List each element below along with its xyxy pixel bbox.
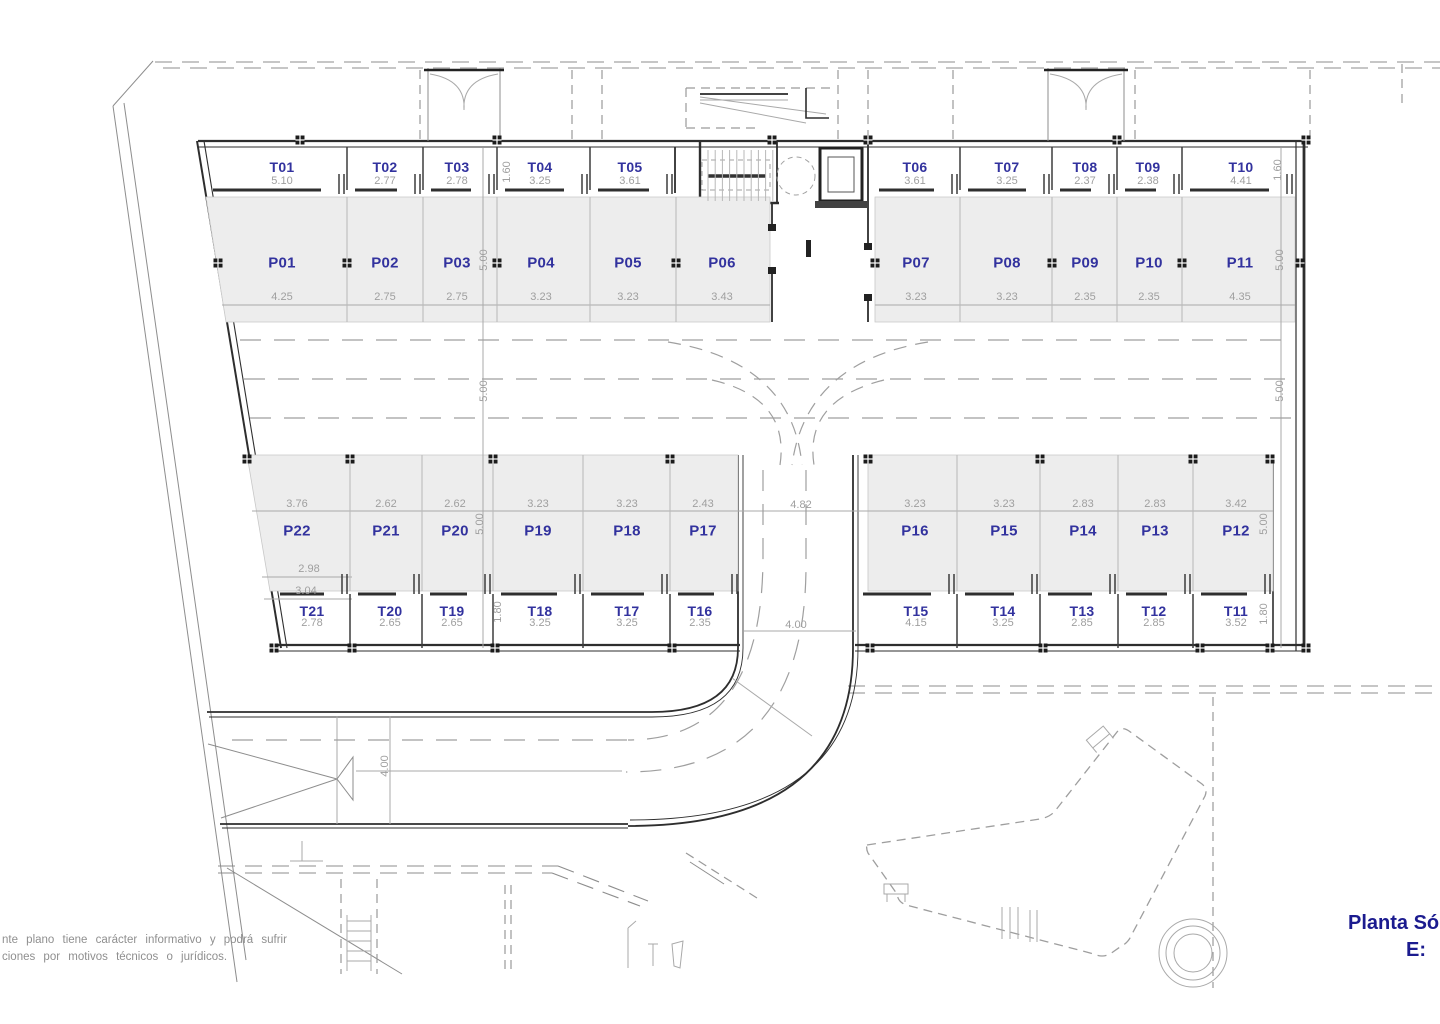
parking-space-label: P06 bbox=[708, 255, 736, 272]
dimension-label: 1.60 bbox=[501, 161, 513, 182]
dimension-label: 1.80 bbox=[492, 601, 504, 622]
parking-width-dim: 4.25 bbox=[271, 291, 292, 303]
parking-width-dim: 2.75 bbox=[374, 291, 395, 303]
storage-width-dim: 3.25 bbox=[996, 175, 1017, 187]
parking-width-dim: 2.83 bbox=[1072, 498, 1093, 510]
storage-room-label: T08 bbox=[1072, 159, 1097, 175]
storage-width-dim: 2.37 bbox=[1074, 175, 1095, 187]
dimension-label: 5.00 bbox=[474, 513, 486, 534]
storage-width-dim: 2.77 bbox=[374, 175, 395, 187]
parking-width-dim: 2.83 bbox=[1144, 498, 1165, 510]
parking-space-label: P08 bbox=[993, 255, 1021, 272]
parking-space-label: P22 bbox=[283, 523, 311, 540]
storage-room-label: T07 bbox=[994, 159, 1019, 175]
parking-space-label: P01 bbox=[268, 255, 296, 272]
parking-space-label: P15 bbox=[990, 523, 1018, 540]
storage-width-dim: 2.78 bbox=[301, 617, 322, 629]
parking-space-label: P13 bbox=[1141, 523, 1169, 540]
parking-space-label: P20 bbox=[441, 523, 469, 540]
parking-space-label: P11 bbox=[1227, 255, 1254, 272]
dimension-label: 2.98 bbox=[298, 563, 319, 575]
parking-space-label: P05 bbox=[614, 255, 642, 272]
parking-width-dim: 3.76 bbox=[286, 498, 307, 510]
storage-room-label: T04 bbox=[527, 159, 552, 175]
parking-space-label: P12 bbox=[1222, 523, 1250, 540]
storage-width-dim: 3.25 bbox=[992, 617, 1013, 629]
disclaimer-line-1: nte plano tiene carácter informativo y p… bbox=[2, 932, 287, 949]
parking-width-dim: 3.23 bbox=[904, 498, 925, 510]
dimension-label: 4.00 bbox=[785, 619, 806, 631]
storage-width-dim: 2.85 bbox=[1143, 617, 1164, 629]
parking-width-dim: 3.23 bbox=[527, 498, 548, 510]
parking-space-label: P19 bbox=[524, 523, 552, 540]
storage-width-dim: 3.25 bbox=[616, 617, 637, 629]
parking-width-dim: 3.23 bbox=[996, 291, 1017, 303]
storage-width-dim: 3.25 bbox=[529, 175, 550, 187]
storage-width-dim: 3.25 bbox=[529, 617, 550, 629]
parking-width-dim: 3.23 bbox=[905, 291, 926, 303]
storage-room-label: T03 bbox=[444, 159, 469, 175]
parking-width-dim: 3.42 bbox=[1225, 498, 1246, 510]
parking-width-dim: 2.62 bbox=[375, 498, 396, 510]
storage-width-dim: 2.65 bbox=[441, 617, 462, 629]
plan-scale: E: bbox=[1348, 937, 1439, 964]
dimension-label: 4.00 bbox=[379, 755, 391, 776]
storage-width-dim: 4.15 bbox=[905, 617, 926, 629]
storage-room-label: T10 bbox=[1228, 159, 1253, 175]
parking-width-dim: 3.23 bbox=[616, 498, 637, 510]
dimension-label: 3.04 bbox=[295, 585, 316, 597]
parking-width-dim: 3.23 bbox=[617, 291, 638, 303]
dimension-label: 4.82 bbox=[790, 499, 811, 511]
parking-space-label: P18 bbox=[613, 523, 641, 540]
parking-space-label: P09 bbox=[1071, 255, 1099, 272]
dimension-label: 5.00 bbox=[1274, 380, 1286, 401]
parking-space-label: P04 bbox=[527, 255, 555, 272]
dimension-label: 5.00 bbox=[1274, 249, 1286, 270]
parking-space-label: P16 bbox=[901, 523, 929, 540]
title-block: Planta Só E: bbox=[1348, 910, 1439, 964]
parking-width-dim: 3.43 bbox=[711, 291, 732, 303]
parking-space-label: P21 bbox=[372, 523, 400, 540]
dimension-label: 5.00 bbox=[1258, 513, 1270, 534]
storage-width-dim: 4.41 bbox=[1230, 175, 1251, 187]
disclaimer-line-2: ciones por motivos técnicos o jurídicos. bbox=[2, 949, 287, 966]
parking-width-dim: 2.75 bbox=[446, 291, 467, 303]
storage-width-dim: 2.78 bbox=[446, 175, 467, 187]
dimension-label: 5.00 bbox=[478, 380, 490, 401]
parking-space-label: P14 bbox=[1069, 523, 1097, 540]
parking-space-label: P17 bbox=[689, 523, 717, 540]
storage-width-dim: 2.35 bbox=[689, 617, 710, 629]
parking-width-dim: 4.35 bbox=[1229, 291, 1250, 303]
parking-space-label: P03 bbox=[443, 255, 471, 272]
storage-room-label: T06 bbox=[902, 159, 927, 175]
parking-width-dim: 3.23 bbox=[530, 291, 551, 303]
storage-width-dim: 3.61 bbox=[619, 175, 640, 187]
storage-room-label: T05 bbox=[617, 159, 642, 175]
parking-width-dim: 2.35 bbox=[1138, 291, 1159, 303]
storage-width-dim: 2.38 bbox=[1137, 175, 1158, 187]
storage-width-dim: 2.65 bbox=[379, 617, 400, 629]
dimension-label: 1.60 bbox=[1272, 159, 1284, 180]
floor-plan: P014.25P022.75P032.75P043.23P053.23P063.… bbox=[0, 0, 1440, 1024]
parking-space-label: P02 bbox=[371, 255, 399, 272]
parking-width-dim: 3.23 bbox=[993, 498, 1014, 510]
storage-width-dim: 5.10 bbox=[271, 175, 292, 187]
parking-width-dim: 2.43 bbox=[692, 498, 713, 510]
dimension-label: 1.80 bbox=[1258, 603, 1270, 624]
storage-width-dim: 3.52 bbox=[1225, 617, 1246, 629]
storage-width-dim: 2.85 bbox=[1071, 617, 1092, 629]
disclaimer-note: nte plano tiene carácter informativo y p… bbox=[2, 932, 287, 966]
storage-width-dim: 3.61 bbox=[904, 175, 925, 187]
dimension-label: 5.00 bbox=[478, 249, 490, 270]
plan-labels: P014.25P022.75P032.75P043.23P053.23P063.… bbox=[0, 0, 1440, 1024]
storage-room-label: T02 bbox=[372, 159, 397, 175]
parking-space-label: P07 bbox=[902, 255, 930, 272]
storage-room-label: T01 bbox=[269, 159, 294, 175]
storage-room-label: T09 bbox=[1135, 159, 1160, 175]
parking-width-dim: 2.35 bbox=[1074, 291, 1095, 303]
parking-width-dim: 2.62 bbox=[444, 498, 465, 510]
parking-space-label: P10 bbox=[1135, 255, 1163, 272]
plan-title: Planta Só bbox=[1348, 910, 1439, 937]
